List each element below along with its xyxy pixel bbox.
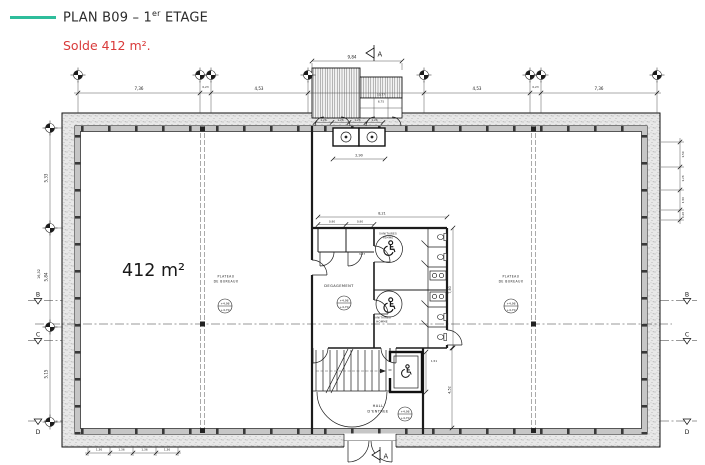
room-label-femme: FEMME — [383, 235, 394, 239]
dim-bottom-4: 1,36 — [164, 448, 170, 452]
drawing-sheet: PLAN B09 – 1er ETAGE Solde 412 m². — [0, 0, 705, 465]
dim-door-1: 1,26 — [320, 118, 326, 122]
left-dimensions: 5,33 5,84 5,15 16,32 — [37, 121, 63, 430]
room-label-plateau-left-2: DE BUREAUX — [214, 280, 239, 284]
dim-top-1: 7,36 — [135, 86, 144, 91]
dim-left-total: 16,32 — [37, 269, 41, 279]
dim-right-3: 1,50 — [681, 197, 685, 203]
room-label-hall: HALL — [373, 404, 384, 408]
grid-bubble-c-left: C — [36, 332, 40, 339]
dim-elevator: 1,51 — [431, 359, 437, 363]
dim-canopy-b: 6,75 — [378, 100, 384, 104]
dim-bottom-2: 1,36 — [118, 448, 124, 452]
grid-marker — [71, 68, 86, 83]
grid-marker — [43, 415, 58, 430]
section-marker-a-top — [366, 45, 374, 61]
dim-femme-width: 3,67 — [359, 252, 365, 256]
dim-top-5: 0,23 — [532, 85, 538, 89]
grid-bubble-c-right: C — [685, 332, 689, 339]
entrance-doors: A — [344, 434, 396, 464]
dim-left-3: 5,15 — [44, 369, 49, 378]
grid-bubble-d-right: D — [685, 429, 690, 436]
room-label-plateau-left: PLATEAU — [218, 275, 235, 279]
grid-marker — [43, 121, 58, 136]
room-label-homme: HOMME — [376, 319, 388, 323]
dim-right-4: 0,26 — [681, 212, 685, 218]
elevator — [389, 352, 423, 392]
section-letter-a-top: A — [378, 51, 383, 59]
dim-core-width: 8,21 — [378, 212, 386, 216]
room-label-plateau-right: PLATEAU — [503, 275, 520, 279]
right-dimensions: 1,50 1,26 1,50 0,26 — [661, 138, 685, 224]
floor-plan: +4,98 +4,70 — [0, 0, 705, 465]
grid-marker — [650, 68, 665, 83]
dim-hall-right: 4,52 — [448, 386, 452, 394]
area-label: 412 m² — [122, 261, 185, 281]
level-marker-degagement — [337, 296, 351, 310]
room-label-hall-2: D'ENTREE — [367, 410, 388, 414]
dim-shaft: 2,90 — [355, 154, 363, 158]
level-marker-hall — [398, 407, 412, 421]
dim-cupboard-1: 0,90 — [329, 220, 335, 224]
grid-marker — [43, 221, 58, 236]
dim-door-2: 1,26 — [337, 118, 343, 122]
dim-top-4: 4,53 — [473, 86, 482, 91]
section-letter-a-bottom: A — [384, 453, 389, 461]
room-label-plateau-right-2: DE BUREAUX — [499, 280, 524, 284]
grid-bubble-b-left: B — [36, 292, 40, 299]
dim-core-right: 7,80 — [448, 286, 452, 294]
dim-door-3: 1,26 — [354, 118, 360, 122]
dim-cupboard-2: 0,90 — [357, 220, 363, 224]
bottom-dimensions: 1,36 1,36 1,36 1,36 — [85, 447, 181, 456]
entrance-canopy: 10,77 6,75 1,26 1,26 1,26 1,26 9,84 A — [310, 45, 404, 126]
dim-canopy-width: 9,84 — [348, 55, 357, 60]
level-marker-right — [504, 299, 518, 313]
dim-left-1: 5,33 — [44, 173, 49, 182]
dim-bottom-1: 1,36 — [96, 448, 102, 452]
grid-marker — [534, 68, 549, 83]
dim-top-2: 0,23 — [202, 85, 208, 89]
grid-marker — [204, 68, 219, 83]
dim-left-2: 5,84 — [44, 272, 49, 281]
room-label-degagement: DEGAGEMENT — [324, 284, 354, 288]
dim-door-4: 1,26 — [371, 118, 377, 122]
grid-bubble-b-right: B — [685, 292, 689, 299]
dim-right-1: 1,50 — [681, 151, 685, 157]
dim-top-6: 7,36 — [595, 86, 604, 91]
grid-bubble-d-left: D — [36, 429, 41, 436]
grid-marker — [43, 320, 58, 335]
dim-right-2: 1,26 — [681, 175, 685, 181]
dim-top-3: 4,53 — [255, 86, 264, 91]
dim-bottom-3: 1,36 — [141, 448, 147, 452]
level-marker-left — [218, 299, 232, 313]
grid-marker — [417, 68, 432, 83]
section-marker-a-bottom — [372, 447, 380, 463]
